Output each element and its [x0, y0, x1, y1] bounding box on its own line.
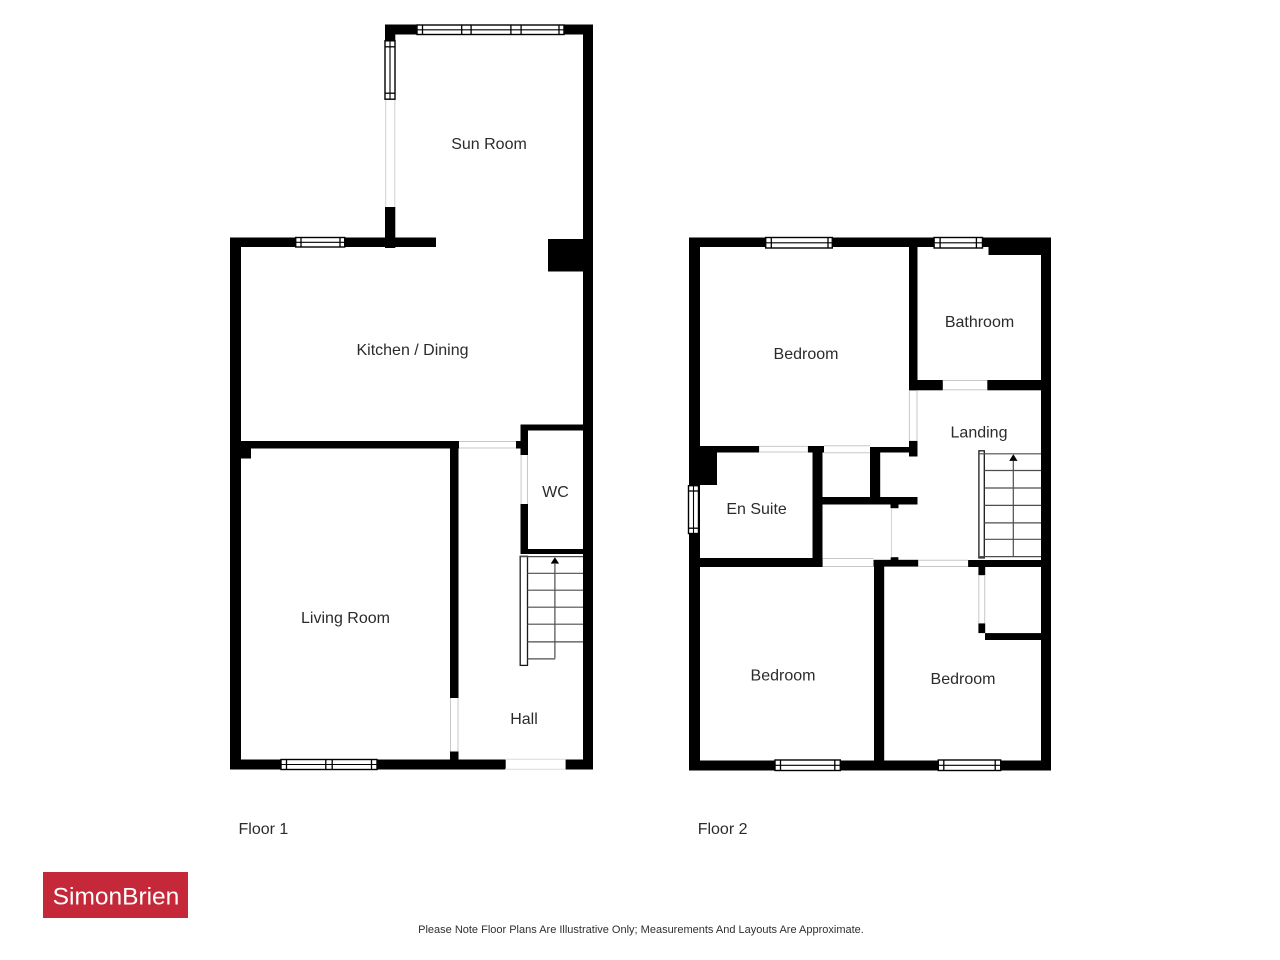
svg-text:Landing: Landing	[951, 425, 1008, 442]
svg-text:Bedroom: Bedroom	[774, 346, 839, 363]
svg-text:Bathroom: Bathroom	[945, 314, 1014, 331]
svg-text:SimonBrien: SimonBrien	[53, 884, 180, 911]
svg-text:Kitchen / Dining: Kitchen / Dining	[356, 342, 468, 359]
svg-text:Sun Room: Sun Room	[451, 136, 527, 153]
svg-text:Living Room: Living Room	[301, 610, 390, 627]
svg-text:Bedroom: Bedroom	[751, 668, 816, 685]
svg-text:Floor 2: Floor 2	[698, 821, 748, 838]
svg-text:Bedroom: Bedroom	[931, 671, 996, 688]
svg-text:Please Note Floor Plans Are Il: Please Note Floor Plans Are Illustrative…	[418, 924, 864, 936]
svg-text:WC: WC	[542, 484, 569, 501]
svg-text:En Suite: En Suite	[726, 501, 787, 518]
svg-text:Hall: Hall	[510, 711, 538, 728]
svg-text:Floor 1: Floor 1	[239, 821, 289, 838]
